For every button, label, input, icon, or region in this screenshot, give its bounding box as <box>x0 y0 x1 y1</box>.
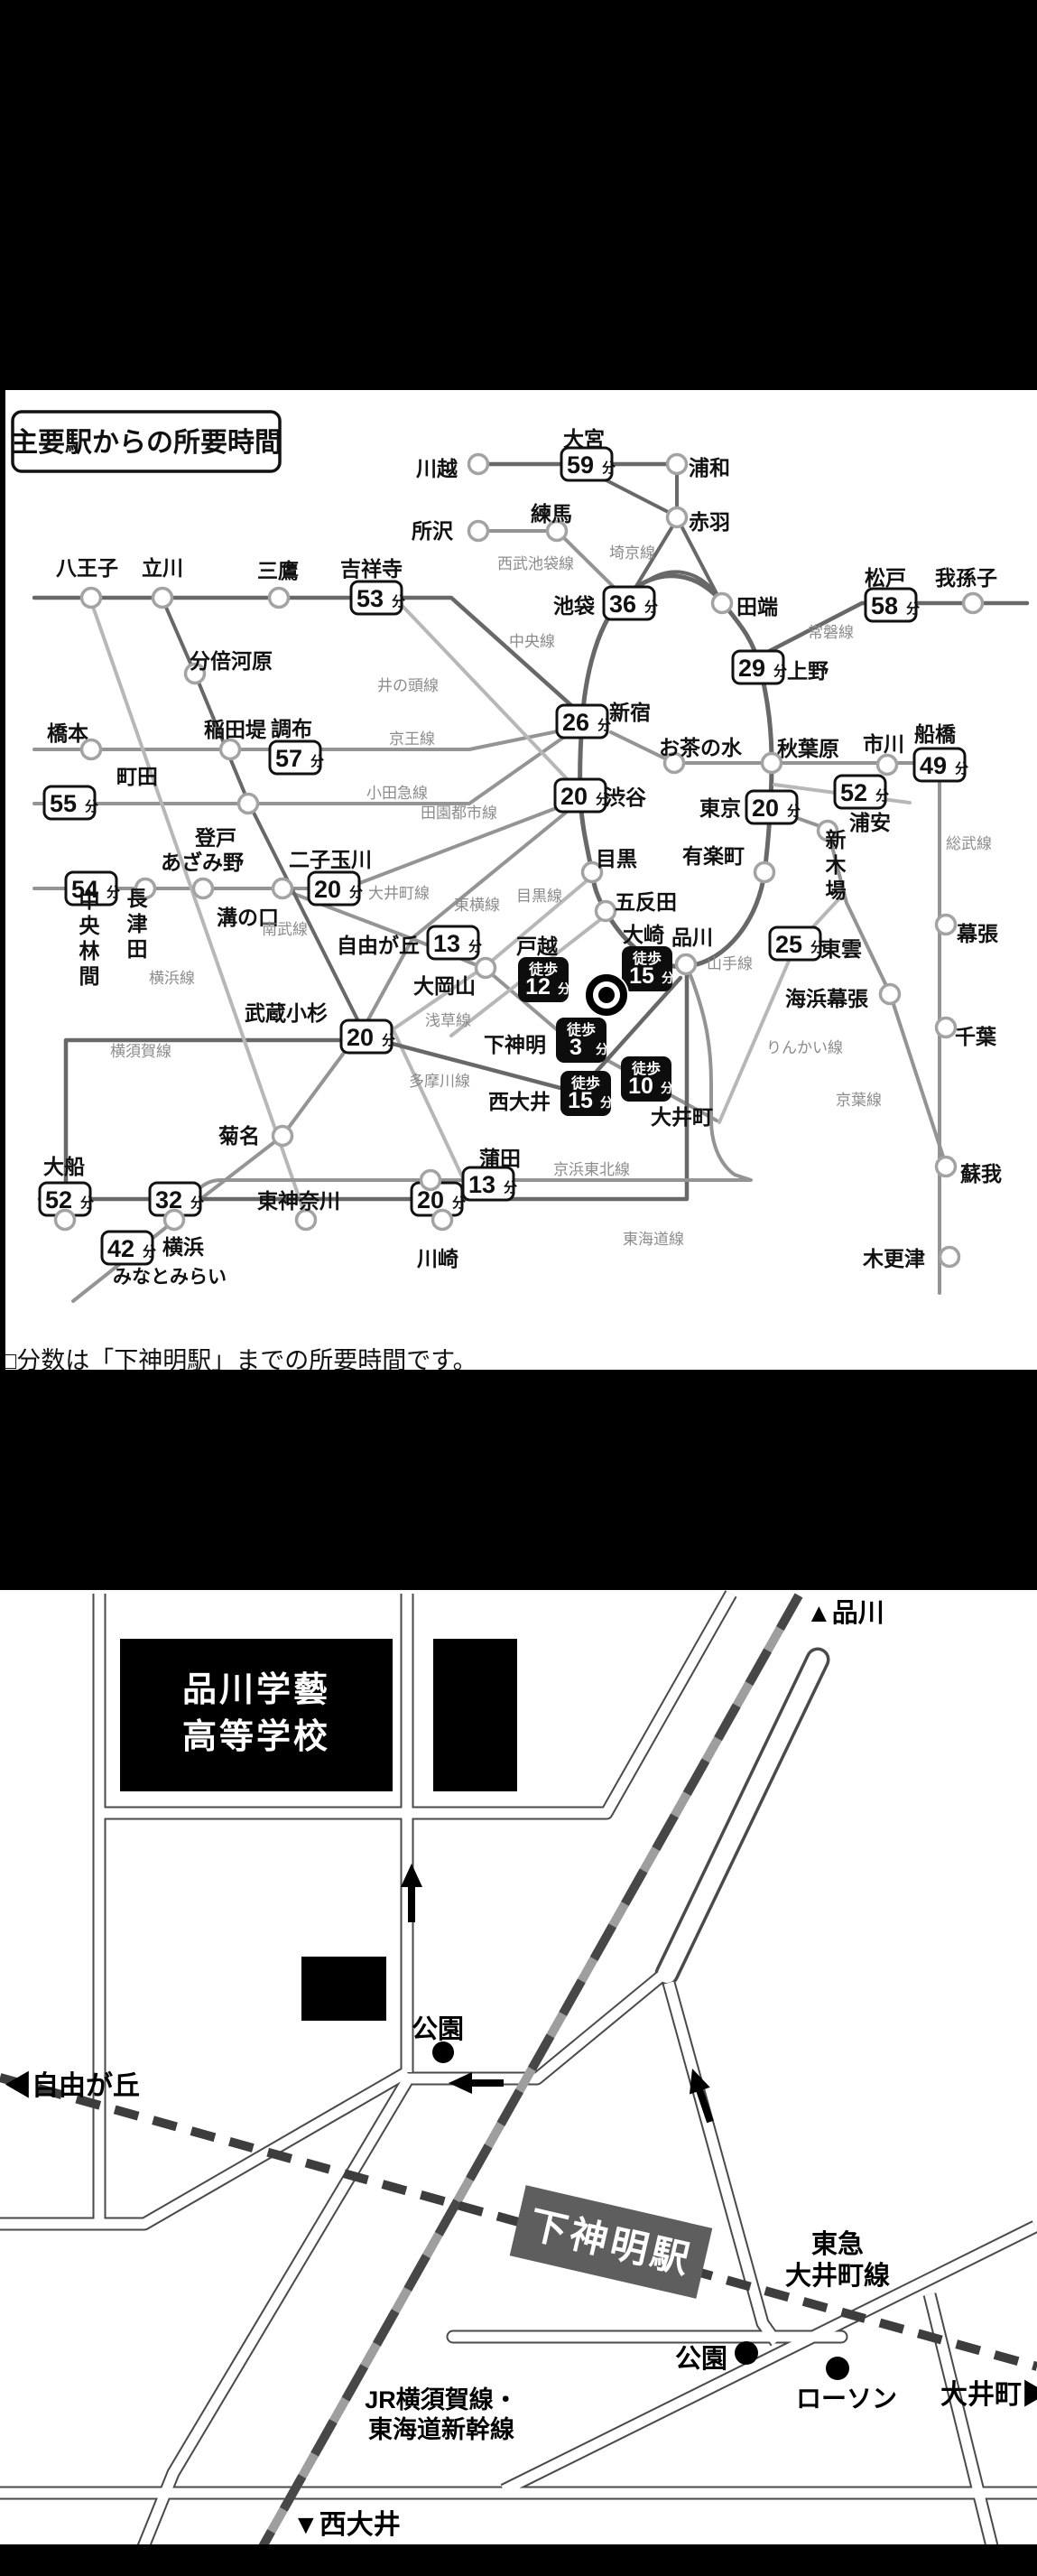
station-dot <box>964 594 983 613</box>
line-label: 田園都市線 <box>421 804 497 822</box>
time-badge-value: 49 <box>920 752 947 779</box>
station-dot <box>56 1211 75 1230</box>
station-label: 木更津 <box>862 1247 925 1270</box>
school-building <box>120 1639 393 1791</box>
time-badge-unit: 分 <box>106 885 120 900</box>
station-dot <box>937 1158 956 1176</box>
left-black-strip <box>0 390 5 1370</box>
time-badge: 29分 <box>733 651 787 684</box>
rail-line-omiya-akabane <box>601 478 675 516</box>
walk-badge-value: 15 <box>568 1088 593 1113</box>
line-label: 浅草線 <box>425 1012 471 1029</box>
target-center <box>598 987 615 1003</box>
station-dot <box>297 1211 316 1230</box>
station-label: 自由が丘 <box>337 934 420 957</box>
map-title-box: 主要駅からの所要時間 <box>11 412 282 471</box>
station-label: 下神明 <box>484 1033 546 1056</box>
line-label: 東海道線 <box>623 1231 684 1248</box>
station-label: 東京 <box>699 796 741 820</box>
station-label: 松戸 <box>865 566 906 590</box>
time-badge-unit: 分 <box>190 1195 204 1211</box>
line-label: 常磐線 <box>808 624 854 641</box>
station-dot <box>194 879 213 898</box>
local-label: 大井町▶ <box>940 2380 1037 2410</box>
local-label: 公園 <box>675 2345 727 2374</box>
line-label: 目黒線 <box>516 888 562 905</box>
building-3 <box>301 1957 386 2021</box>
time-badge-unit: 分 <box>787 804 801 819</box>
time-badge-value: 25 <box>775 931 802 958</box>
station-label: 上野 <box>787 659 829 683</box>
line-label: 東横線 <box>454 897 500 914</box>
station-dot <box>937 916 956 935</box>
station-label: 稲田堤 <box>204 718 267 741</box>
station-label: 市川 <box>863 732 904 756</box>
station-label: 大船 <box>43 1155 85 1178</box>
station-label: 中央林間 <box>79 888 101 988</box>
time-badge-value: 29 <box>738 655 765 682</box>
local-label: ローソン <box>796 2385 897 2413</box>
station-label: 東神奈川 <box>257 1189 340 1213</box>
time-badge: 55分 <box>44 786 98 819</box>
station-dot <box>713 594 732 613</box>
station-label: 大井町 <box>651 1105 713 1129</box>
school-name-line: 高等学校 <box>182 1717 330 1756</box>
time-badge: 13分 <box>463 1167 517 1200</box>
station-label: お茶の水 <box>659 736 743 759</box>
time-badge-unit: 分 <box>349 885 363 900</box>
station-label: 目黒 <box>596 847 637 870</box>
walk-badge: 徒歩15分 <box>622 946 674 991</box>
local-label: 東海道新幹線 <box>368 2415 514 2443</box>
time-badge-unit: 分 <box>80 1195 94 1211</box>
station-label: 有楽町 <box>682 844 745 868</box>
station-dot <box>677 955 696 974</box>
station-label: 我孫子 <box>935 566 997 590</box>
rail-line-chuo <box>34 598 582 715</box>
station-label: 分倍河原 <box>190 649 273 673</box>
line-label: 小田急線 <box>366 785 428 802</box>
station-dot <box>433 1211 452 1230</box>
station-label: 東雲 <box>820 937 862 961</box>
station-label: 練馬 <box>531 502 572 525</box>
station-dot <box>477 959 495 978</box>
line-label: 大井町線 <box>368 885 430 902</box>
time-badge-unit: 分 <box>906 601 920 617</box>
time-badge: 26分 <box>557 705 611 738</box>
station-label: 八王子 <box>56 556 118 580</box>
time-badge: 20分 <box>746 791 801 823</box>
time-badge-value: 32 <box>155 1186 182 1214</box>
rail-labels-layer: 八王子立川三鷹吉祥寺所沢練馬川越大宮浦和赤羽池袋田端松戸我孫子上野新宿お茶の水秋… <box>43 427 1002 1288</box>
time-badge: 49分 <box>914 749 968 781</box>
time-badge: 42分 <box>102 1232 156 1264</box>
map-note: □分数は「下神明駅」までの所要時間です。 <box>2 1347 477 1370</box>
station-label: 調布 <box>271 717 312 740</box>
line-label: りんかい線 <box>766 1039 843 1056</box>
rail-map-svg: 53分59分58分36分29分26分57分55分49分52分20分20分54分2… <box>0 390 1037 1370</box>
time-badge: 20分 <box>309 872 363 905</box>
station-dot <box>668 508 687 527</box>
walk-badge: 徒歩10分 <box>621 1056 673 1102</box>
station-dot <box>937 1018 956 1037</box>
station-dot <box>469 455 488 474</box>
time-badge: 20分 <box>555 779 609 812</box>
line-label: 多摩川線 <box>409 1073 470 1090</box>
time-badge-value: 58 <box>871 592 898 619</box>
station-label: 田端 <box>736 595 778 618</box>
station-label: 大崎 <box>623 923 664 946</box>
station-label: 立川 <box>142 556 183 580</box>
time-badge-value: 13 <box>433 930 460 957</box>
walk-badge-unit: 分 <box>558 981 570 996</box>
station-label: 町田 <box>116 765 158 788</box>
station-label: 品川 <box>671 925 713 949</box>
station-label: 三鷹 <box>257 559 299 582</box>
station-label: 浦和 <box>689 456 730 479</box>
station-dot <box>881 985 900 1004</box>
station-dot <box>421 1171 440 1190</box>
walk-badge: 徒歩15分 <box>560 1071 613 1116</box>
station-label: 赤羽 <box>689 510 730 534</box>
area-map-svg: 品川学藝高等学校 下神明駅 ▲品川◀自由が丘▼西大井公園公園ローソン大井町▶東急… <box>0 1590 1037 2544</box>
station-dot <box>597 902 616 921</box>
school-access-poster: 53分59分58分36分29分26分57分55分49分52分20分20分54分2… <box>0 0 1037 2576</box>
time-badge: 59分 <box>561 448 616 480</box>
park-dot-lower <box>735 2341 758 2365</box>
school-location-target <box>584 972 629 1018</box>
station-label: 幕張 <box>956 922 999 945</box>
station-label: 五反田 <box>615 890 677 914</box>
local-label: JR横須賀線・ <box>365 2385 518 2413</box>
line-label: 京王線 <box>389 730 435 748</box>
local-label: ▲品川 <box>806 1599 884 1628</box>
station-label: 千葉 <box>955 1025 997 1048</box>
station-dot <box>273 1127 292 1146</box>
time-badge-value: 36 <box>609 591 636 618</box>
local-label: 大井町線 <box>785 2260 890 2291</box>
station-label: 秋葉原 <box>777 737 839 760</box>
station-label: 船橋 <box>914 722 957 746</box>
area-map-panel: 品川学藝高等学校 下神明駅 ▲品川◀自由が丘▼西大井公園公園ローソン大井町▶東急… <box>0 1590 1037 2544</box>
walk-badge-value: 12 <box>525 974 551 1000</box>
station-dot <box>469 522 488 541</box>
line-label: 西武池袋線 <box>497 555 574 572</box>
walk-badge-unit: 分 <box>662 971 674 985</box>
school-name-line: 品川学藝 <box>182 1670 330 1709</box>
time-badge-unit: 分 <box>468 939 482 954</box>
station-dot <box>668 455 687 474</box>
time-badge: 52分 <box>835 776 889 808</box>
station-label: 戸越 <box>516 935 559 958</box>
walk-badge-value: 10 <box>628 1074 653 1099</box>
shimoshinmei-station-box: 下神明駅 <box>510 2185 713 2299</box>
time-badge-unit: 分 <box>382 1033 395 1048</box>
line-label: 横浜線 <box>149 970 195 987</box>
station-label: 二子玉川 <box>289 848 372 871</box>
time-badge-value: 53 <box>356 585 384 612</box>
station-label: 蘇我 <box>959 1162 1002 1186</box>
time-badge: 13分 <box>428 926 482 959</box>
station-dot <box>221 740 240 759</box>
station-label: 菊名 <box>218 1124 260 1148</box>
local-label: ◀自由が丘 <box>5 2070 140 2101</box>
station-dot <box>82 589 101 608</box>
station-label: あざみ野 <box>161 851 244 874</box>
time-badge-unit: 分 <box>143 1244 156 1260</box>
time-badge-value: 13 <box>468 1171 495 1198</box>
time-badge-value: 42 <box>107 1235 134 1262</box>
station-dot <box>239 795 258 814</box>
line-label: 京浜東北線 <box>553 1161 630 1178</box>
line-label: 南武線 <box>262 921 308 938</box>
time-badge-value: 20 <box>752 795 779 822</box>
time-badge-unit: 分 <box>773 664 787 679</box>
time-badge-value: 55 <box>50 790 77 817</box>
station-label: 橋本 <box>47 721 88 745</box>
time-badge-unit: 分 <box>85 799 98 814</box>
access-time-map-panel: 53分59分58分36分29分26分57分55分49分52分20分20分54分2… <box>0 390 1037 1370</box>
local-label: 公園 <box>412 2015 464 2044</box>
station-dot <box>755 863 774 882</box>
time-badge: 57分 <box>270 741 324 774</box>
station-label: 川越 <box>416 457 458 480</box>
time-badge-unit: 分 <box>310 754 324 769</box>
station-label: 所沢 <box>412 519 454 543</box>
station-dot <box>165 1211 184 1230</box>
time-badge-value: 57 <box>275 745 302 772</box>
time-badge: 58分 <box>866 589 920 621</box>
line-label: 山手線 <box>707 955 753 972</box>
walk-badge: 徒歩3分 <box>556 1018 608 1063</box>
station-label: 新宿 <box>609 701 651 724</box>
line-label: 井の頭線 <box>377 677 439 694</box>
station-dot <box>273 879 292 898</box>
line-label: 京葉線 <box>836 1092 882 1109</box>
time-badge: 20分 <box>341 1020 395 1053</box>
station-label: 長津田 <box>127 887 149 961</box>
station-dot <box>270 589 289 608</box>
station-label: 登戸 <box>194 826 236 850</box>
time-badge: 53分 <box>351 581 405 614</box>
time-badge-unit: 分 <box>955 761 968 777</box>
walk-badge-unit: 分 <box>661 1081 673 1095</box>
station-label: 大宮 <box>563 427 605 451</box>
station-label: 浦安 <box>849 811 891 834</box>
local-label: 東急 <box>811 2229 864 2259</box>
walk-badge: 徒歩12分 <box>518 957 570 1002</box>
line-label: 横須賀線 <box>110 1043 171 1060</box>
time-badge-unit: 分 <box>644 600 658 615</box>
station-dot <box>153 589 172 608</box>
time-badge-unit: 分 <box>504 1180 517 1195</box>
time-badge: 36分 <box>604 587 658 619</box>
walk-badge-value: 3 <box>569 1035 582 1060</box>
line-label: 中央線 <box>509 633 555 650</box>
station-label: 川崎 <box>417 1247 458 1270</box>
time-badge-value: 52 <box>840 779 867 806</box>
station-label: 吉祥寺 <box>340 557 403 581</box>
time-badge: 25分 <box>770 927 824 960</box>
station-label: みなとみらい <box>113 1267 227 1288</box>
station-dot <box>940 1248 959 1267</box>
station-label: 新木場 <box>825 828 847 902</box>
lawson-dot <box>826 2357 849 2380</box>
map-title: 主要駅からの所要時間 <box>11 428 282 458</box>
local-landmarks-layer: 下神明駅 <box>401 1864 849 2380</box>
time-badge-unit: 分 <box>392 594 405 609</box>
time-badge-unit: 分 <box>602 460 616 476</box>
time-badge-value: 26 <box>562 709 589 736</box>
local-buildings-layer: 品川学藝高等学校 <box>120 1639 517 2021</box>
time-badge-value: 20 <box>347 1024 374 1051</box>
building-2 <box>433 1639 517 1791</box>
time-badge-value: 20 <box>314 876 341 903</box>
walk-badge-unit: 分 <box>600 1095 613 1110</box>
time-badge-value: 59 <box>567 451 594 479</box>
local-label: ▼西大井 <box>292 2510 401 2540</box>
line-label: 埼京線 <box>609 544 655 562</box>
station-label: 池袋 <box>553 594 596 618</box>
station-label: 武蔵小杉 <box>245 1001 328 1025</box>
road-fill-east-cross-street <box>930 2294 995 2544</box>
station-label: 海浜幕張 <box>785 987 869 1010</box>
walk-badge-value: 15 <box>629 963 654 989</box>
line-label: 総武線 <box>946 835 992 852</box>
station-label: 蒲田 <box>479 1147 521 1170</box>
park-dot-upper <box>432 2041 454 2063</box>
time-badge-value: 20 <box>560 783 588 810</box>
station-label: 渋谷 <box>605 786 647 809</box>
station-label: 大岡山 <box>413 974 476 998</box>
station-dot <box>878 756 897 775</box>
station-label: 横浜 <box>162 1235 204 1259</box>
walk-badge-unit: 分 <box>596 1042 608 1056</box>
rail-line-tamagawa-line <box>392 1027 462 1176</box>
time-badge-unit: 分 <box>452 1195 466 1211</box>
station-label: 西大井 <box>488 1090 551 1113</box>
time-badge-unit: 分 <box>875 788 889 804</box>
road-fill-rail-side-street <box>667 1660 818 1974</box>
